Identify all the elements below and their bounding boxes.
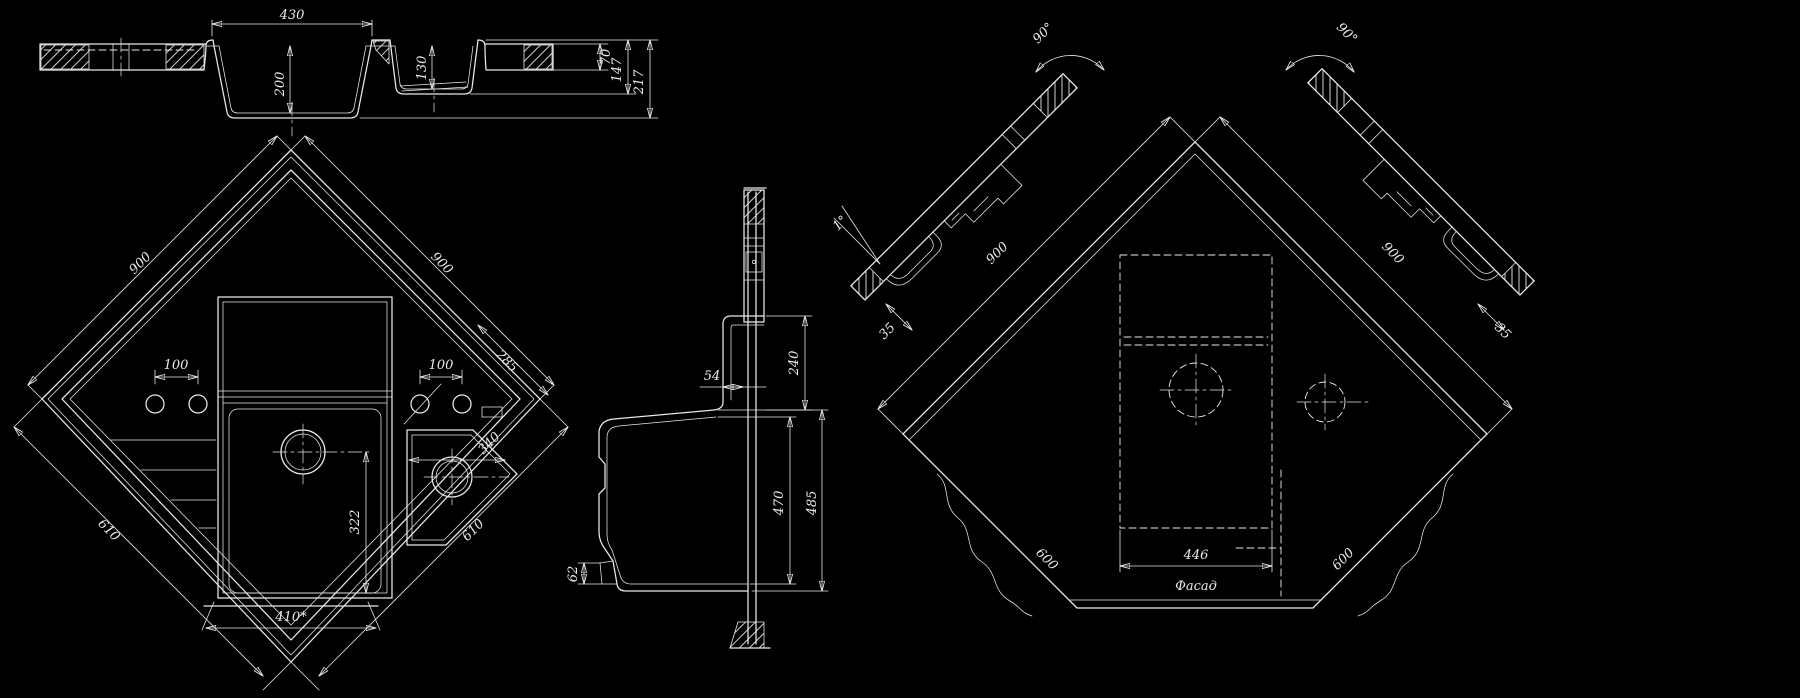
small-bowl-plan xyxy=(407,430,517,545)
break-line-right xyxy=(1358,474,1453,616)
installation-view: 90° 90° 1° 35 35 900 900 600 600 446 Фас… xyxy=(830,20,1534,616)
dim-install-edge-upper-left: 900 xyxy=(983,239,1011,267)
dim-section-small-depth: 130 xyxy=(415,56,430,81)
dim-install-angle-left: 90° xyxy=(1030,20,1057,47)
panel-edge xyxy=(730,188,770,648)
dim-section-mid: 147 xyxy=(610,57,625,83)
dim-profile-depth-outer: 485 xyxy=(805,491,820,517)
dim-section-total: 217 xyxy=(632,69,647,96)
dim-plan-bottom-width: 410* xyxy=(274,610,307,625)
countertop-strip-left xyxy=(851,74,1098,321)
tap-holes xyxy=(146,384,502,424)
dim-install-edge-upper-right: 900 xyxy=(1378,239,1406,267)
dim-plan-small-bowl: 340 xyxy=(475,429,503,457)
main-bowl-section xyxy=(204,40,395,118)
dim-profile-depth-inner: 470 xyxy=(772,491,787,517)
dim-install-cutout: 446 xyxy=(1183,548,1209,563)
break-line-left xyxy=(937,474,1032,616)
dim-section-main-depth: 200 xyxy=(273,72,288,98)
dim-profile-upper: 240 xyxy=(787,351,802,377)
drawing-page: 430 200 130 70 147 217 xyxy=(0,0,1800,698)
dim-plan-hole-left: 100 xyxy=(164,358,189,373)
countertop-strip-right xyxy=(1287,69,1534,316)
dim-profile-foot: 62 xyxy=(566,566,581,583)
profile-view: 54 240 470 485 62 xyxy=(566,188,828,648)
plan-dimensions: 100 100 900 900 610 610 285 340 322 xyxy=(14,136,568,690)
dim-plan-hole-right: 100 xyxy=(429,358,454,373)
dim-plan-edge-upper-left: 900 xyxy=(126,249,154,277)
plan-view: 100 100 900 900 610 610 285 340 322 xyxy=(14,136,568,690)
technical-drawing-canvas: 430 200 130 70 147 217 xyxy=(0,0,1800,698)
installation-dimensions: 90° 90° 1° 35 35 900 900 600 600 446 Фас… xyxy=(830,20,1514,594)
dim-plan-main-bowl: 322 xyxy=(348,510,363,535)
dim-install-tilt: 1° xyxy=(830,213,851,234)
label-facade: Фасад xyxy=(1175,579,1217,594)
hidden-sink-outline xyxy=(1120,255,1372,596)
section-view: 430 200 130 70 147 217 xyxy=(40,8,658,136)
dim-profile-neck: 54 xyxy=(704,369,721,384)
section-dimensions: 430 200 130 70 147 217 xyxy=(212,8,658,118)
dim-install-offset-right: 35 xyxy=(1491,320,1513,342)
dim-plan-edge-cut: 285 xyxy=(492,347,521,376)
dim-plan-edge-lower-left: 610 xyxy=(94,516,122,544)
small-bowl-section xyxy=(390,40,486,94)
dim-install-edge-lower-left: 600 xyxy=(1032,545,1060,573)
countertop-corner-outline xyxy=(903,142,1487,616)
dim-install-offset-left: 35 xyxy=(876,320,898,342)
dim-install-angle-right: 90° xyxy=(1333,20,1360,47)
dim-plan-edge-upper-right: 900 xyxy=(427,249,455,277)
sink-profile xyxy=(599,316,764,591)
dim-section-width: 430 xyxy=(279,8,305,23)
drainboard-grooves xyxy=(111,440,216,528)
plan-outlines xyxy=(42,150,540,662)
dim-install-edge-lower-right: 600 xyxy=(1329,545,1357,573)
